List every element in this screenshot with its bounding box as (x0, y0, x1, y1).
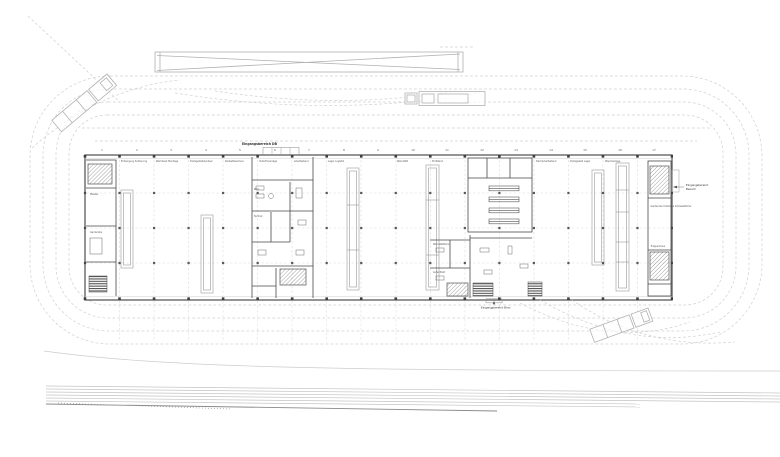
railway-tracks (44, 351, 780, 411)
stair-hatch (447, 283, 468, 296)
entrance-label-db: Eingangsbereich DB (242, 142, 278, 146)
room-label: Meister (90, 193, 99, 196)
stair-hatch (650, 166, 669, 194)
bay-label: Dacharbeitsstand (536, 160, 557, 163)
axis-number: 4 (205, 148, 207, 152)
truck-top-left (52, 74, 117, 132)
room-label: Büro (254, 188, 260, 191)
axis-number: 11 (445, 148, 449, 152)
room-label: Werkstattbüro (433, 243, 450, 246)
room-label: Garderobe Umkleide Schliessfächer (651, 205, 692, 208)
bay-label: Drehgestell Lager (570, 160, 590, 163)
axis-number: 7 (308, 148, 310, 152)
axis-number: 8 (343, 148, 345, 152)
bay-label: Arbeitsstand (294, 160, 309, 163)
bay-label: Entsorgung Sortierung (121, 160, 147, 163)
bay-label: Drehgestellwechsel (190, 160, 213, 163)
bay-label: Prüfstand (432, 160, 444, 163)
room-label: Garderobe (90, 231, 103, 234)
floor-plan-svg: 1 2 3 4 5 6 7 8 9 10 11 12 13 14 15 16 1… (0, 0, 780, 457)
stair-hatch (88, 164, 112, 184)
axis-number: 9 (377, 148, 379, 152)
bay-label: Unterfluranlage (259, 160, 278, 163)
equipment-block (473, 283, 493, 296)
axis-number: 2 (136, 148, 138, 152)
axis-number: 17 (652, 148, 656, 152)
canopy-ramp (155, 52, 463, 72)
bay-label: Lager Logistik (328, 160, 345, 163)
room-label: Treppenhaus (651, 245, 666, 248)
axis-grid-lines-apron (120, 301, 638, 342)
bay-label: Werkbank Montage (156, 160, 179, 163)
room-label: Technik (254, 215, 263, 218)
axis-number: 1 (101, 148, 103, 152)
building (84, 148, 679, 303)
axis-number: 12 (480, 148, 484, 152)
axis-number: 6 (274, 148, 276, 152)
axis-number: 3 (170, 148, 172, 152)
truck-bottom-right (590, 308, 653, 342)
stair-hatch (280, 269, 306, 285)
entrance-label-buero: Eingangsbereich Büro (481, 305, 511, 309)
stair-hatch (650, 252, 669, 280)
equipment-block (528, 282, 542, 296)
axis-number: 13 (514, 148, 518, 152)
bay-label: Radsatzwechsel (225, 160, 244, 163)
axis-labels: 1 2 3 4 5 6 7 8 9 10 11 12 13 14 15 16 1… (101, 148, 656, 152)
axis-number: 14 (549, 148, 553, 152)
axis-number: 16 (618, 148, 622, 152)
bay-label: Werkstatt (397, 160, 408, 163)
floor-plan-canvas: 1 2 3 4 5 6 7 8 9 10 11 12 13 14 15 16 1… (0, 0, 780, 457)
axis-number: 15 (583, 148, 587, 152)
building-outline (85, 155, 672, 300)
truck-top-center (405, 92, 485, 106)
room-label: Aufenthalt (433, 271, 445, 274)
equipment-block (89, 276, 107, 292)
entrance-arrow-besuch (673, 186, 677, 189)
entrance-label-besuch-2: Besuch (686, 187, 696, 191)
axis-number: 10 (411, 148, 415, 152)
axis-number: 5 (239, 148, 241, 152)
exterior-stub (672, 170, 679, 192)
bay-label: Waschanlage (605, 160, 621, 163)
